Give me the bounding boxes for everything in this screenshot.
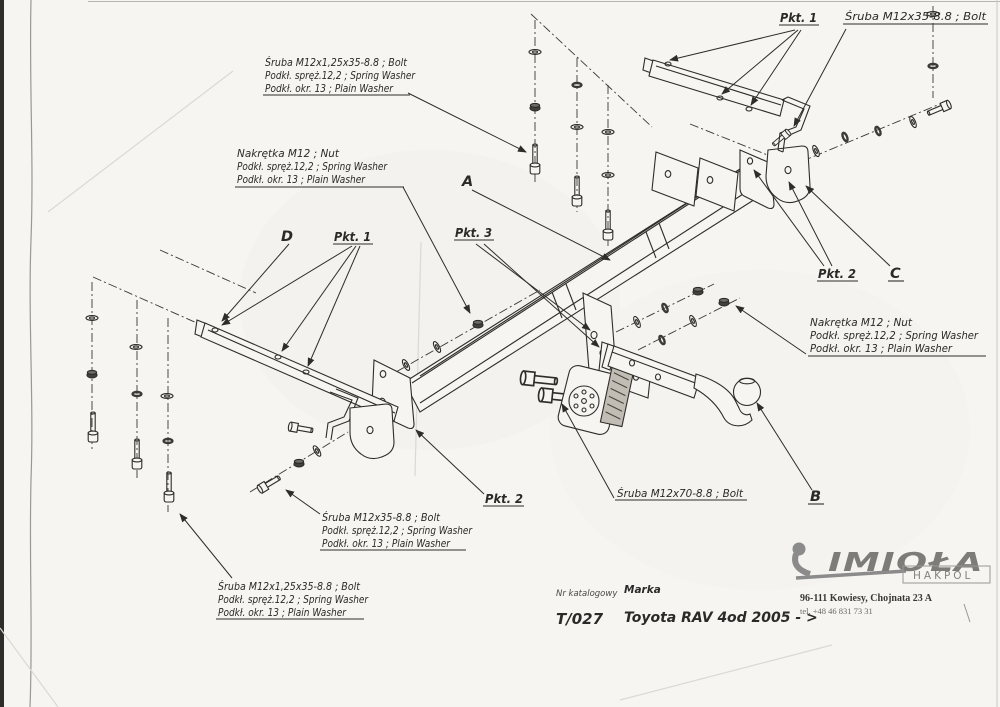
title-block: Nr katalogowy T/027 Marka Toyota RAV 4 o… bbox=[556, 584, 818, 628]
ref-label-c: C bbox=[890, 266, 901, 282]
bolt-icon bbox=[771, 128, 792, 147]
pkt-label: Pkt. 3 bbox=[455, 226, 492, 240]
callout-line: Podkł. spręż.12,2 ; Spring Washer bbox=[322, 524, 473, 537]
ref-label-b: B bbox=[810, 489, 821, 505]
spring-washer-icon bbox=[841, 132, 848, 142]
washer-icon bbox=[602, 173, 614, 178]
assembly-drawing: Śruba M12x1,25x35-8.8 ; Bolt Podkł. sprę… bbox=[0, 0, 1000, 707]
nut-icon bbox=[294, 459, 304, 467]
callout-line: Podkł. okr. 13 ; Plain Washer bbox=[810, 342, 953, 355]
washer-icon bbox=[811, 145, 820, 158]
right-side-bracket bbox=[643, 58, 810, 152]
washer-icon bbox=[161, 394, 173, 399]
manufacturer-address: 96-111 Kowiesy, Chojnata 23 A bbox=[800, 593, 933, 604]
callout-nut-right: Nakrętka M12 ; Nut Podkł. spręż.12,2 ; S… bbox=[808, 316, 986, 356]
washer-icon bbox=[571, 125, 583, 130]
callout-line: Podkł. spręż.12,2 ; Spring Washer bbox=[237, 160, 388, 173]
callout-bolt-bottom-left: Śruba M12x1,25x35-8.8 ; Bolt Podkł. sprę… bbox=[216, 580, 369, 619]
washer-icon bbox=[86, 316, 98, 321]
pkt-label: Pkt. 1 bbox=[780, 11, 817, 25]
callout-bolt-top-right: Śruba M12x35-8.8 ; Bolt bbox=[843, 10, 988, 24]
callout-line: Śruba M12x35-8.8 ; Bolt bbox=[322, 511, 441, 524]
callout-pkt3: Pkt. 3 bbox=[454, 226, 494, 240]
callout-pkt1-right: Pkt. 1 bbox=[779, 11, 819, 25]
callout-line: Nakrętka M12 ; Nut bbox=[237, 147, 340, 160]
bolt-icon bbox=[164, 472, 174, 502]
bolt-icon bbox=[88, 412, 98, 442]
pkt-label: Pkt. 2 bbox=[818, 267, 856, 281]
callout-line: Śruba M12x70-8.8 ; Bolt bbox=[617, 487, 744, 500]
callout-line: Śruba M12x1,25x35-8.8 ; Bolt bbox=[218, 580, 361, 593]
bolt-icon bbox=[256, 474, 282, 494]
spring-washer-icon bbox=[874, 126, 881, 136]
callout-line: Podkł. okr. 13 ; Plain Washer bbox=[265, 82, 394, 95]
nut-icon bbox=[473, 320, 483, 328]
callout-line: Podkł. okr. 13 ; Plain Washer bbox=[237, 173, 366, 186]
callout-line: Śruba M12x1,25x35-8.8 ; Bolt bbox=[265, 56, 408, 69]
nut-icon bbox=[87, 370, 97, 378]
towball-ball bbox=[734, 379, 761, 406]
pkt-label: Pkt. 2 bbox=[485, 492, 523, 506]
fastener-columns-left bbox=[86, 316, 174, 502]
washer-icon bbox=[529, 50, 541, 55]
bolt-icon bbox=[926, 100, 952, 118]
right-washer-bolt-row bbox=[811, 12, 952, 158]
callout-line: Podkł. spręż.12,2 ; Spring Washer bbox=[810, 329, 979, 342]
spring-washer-icon bbox=[573, 83, 582, 87]
callout-pkt2-center: Pkt. 2 bbox=[483, 492, 524, 506]
washer-icon bbox=[908, 116, 917, 129]
logo-sub-text: HAKPOL bbox=[913, 570, 973, 582]
catalog-number-value: T/027 bbox=[556, 610, 604, 628]
callout-line: Podkł. okr. 13 ; Plain Washer bbox=[322, 537, 451, 550]
callout-line: Śruba M12x35-8.8 ; Bolt bbox=[845, 10, 987, 23]
washer-icon bbox=[602, 130, 614, 135]
right-curved-plate bbox=[766, 146, 810, 203]
callout-line: Nakrętka M12 ; Nut bbox=[810, 316, 913, 329]
callout-line: Podkł. spręż.12,2 ; Spring Washer bbox=[265, 69, 416, 82]
callout-bolt-mid: Śruba M12x35-8.8 ; Bolt Podkł. spręż.12,… bbox=[320, 511, 473, 550]
ref-label-d: D bbox=[281, 229, 293, 245]
ref-label-a: A bbox=[461, 174, 473, 190]
washer-icon bbox=[130, 345, 142, 350]
left-curved-plate bbox=[350, 404, 394, 459]
callout-bolt-m70: Śruba M12x70-8.8 ; Bolt bbox=[615, 487, 747, 500]
scanned-instruction-sheet: Śruba M12x1,25x35-8.8 ; Bolt Podkł. sprę… bbox=[0, 0, 1000, 707]
brand-value: Toyota RAV 4 bbox=[624, 610, 727, 626]
brand-label: Marka bbox=[624, 584, 661, 596]
callout-bolt-top-left: Śruba M12x1,25x35-8.8 ; Bolt Podkł. sprę… bbox=[263, 56, 416, 95]
right-end-plates bbox=[652, 146, 810, 211]
callout-ref-c: C bbox=[888, 266, 904, 282]
bolt-icon bbox=[288, 422, 314, 435]
nut-icon bbox=[719, 298, 729, 306]
callout-line: Podkł. okr. 13 ; Plain Washer bbox=[218, 606, 347, 619]
nut-icon bbox=[530, 103, 540, 111]
nut-icon bbox=[693, 287, 703, 295]
manufacturer-phone: tel. +48 46 831 73 31 bbox=[800, 606, 873, 616]
washer-icon bbox=[312, 445, 322, 458]
callout-pkt1-left: Pkt. 1 bbox=[333, 230, 373, 244]
pkt-label: Pkt. 1 bbox=[334, 230, 371, 244]
callout-line: Podkł. spręż.12,2 ; Spring Washer bbox=[218, 593, 369, 606]
callout-pkt2-right: Pkt. 2 bbox=[817, 267, 858, 281]
catalog-number-label: Nr katalogowy bbox=[556, 589, 618, 599]
